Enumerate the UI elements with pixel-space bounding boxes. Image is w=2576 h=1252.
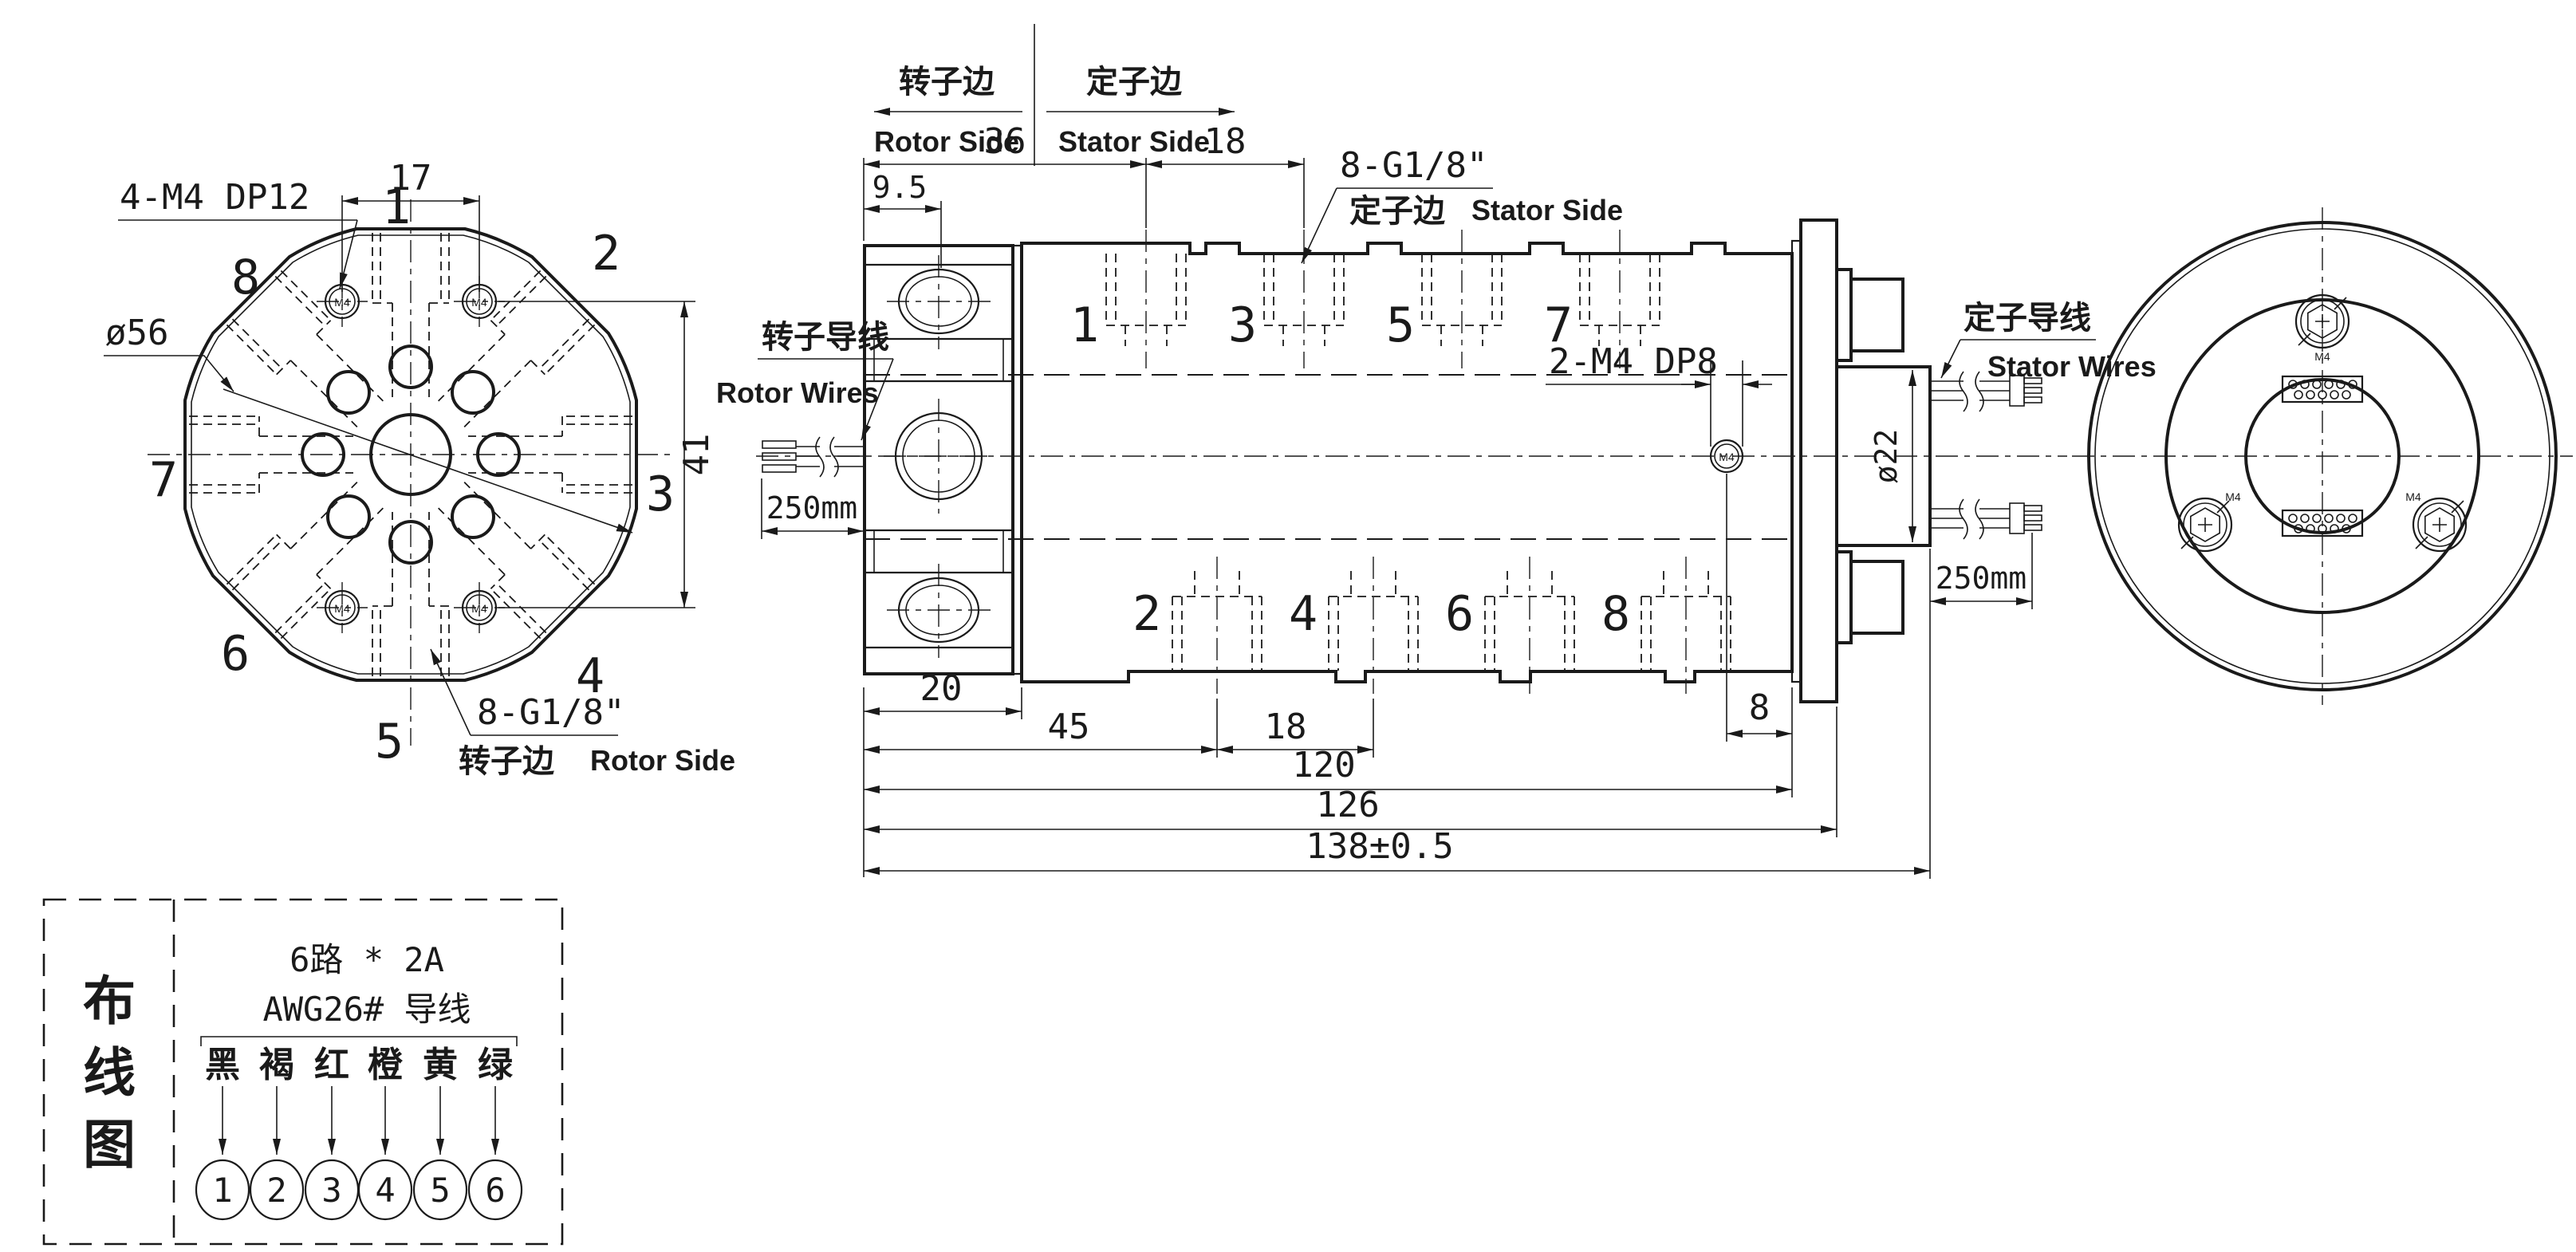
side-port-5: 5 [1386,297,1415,353]
port-label-7: 7 [149,452,178,508]
port-label-6: 6 [221,626,250,682]
dim-20: 20 [920,668,963,709]
port-label-2: 2 [592,226,620,282]
header-stator-side-en: Stator Side [1058,125,1210,158]
dim-138: 138±0.5 [1306,826,1453,867]
side-port-6: 6 [1445,586,1474,642]
stator-side-en: Stator Side [1471,194,1623,226]
dim-17: 17 [390,158,432,199]
dim-36: 36 [984,121,1026,162]
stator-wires-cn: 定子导线 [1964,301,2091,336]
m4-hole-text: M4 [471,296,487,309]
ring-number-1: 1 [212,1171,232,1210]
side-port-2: 2 [1132,586,1161,642]
wire-color-brown: 褐 [259,1045,294,1085]
side-port-4: 4 [1289,586,1318,642]
m4-screw-text: M4 [2225,490,2241,503]
dim-120: 120 [1292,745,1355,785]
side-port-3: 3 [1228,297,1257,353]
port-label-8: 8 [231,250,260,305]
header-rotor-side-cn: 转子边 [899,65,995,100]
ring-number-4: 4 [375,1171,395,1210]
wire-color-green: 绿 [478,1045,514,1085]
dim-9-5: 9.5 [872,170,928,205]
wiring-title-char-1: 布 [83,970,136,1032]
ring-number-2: 2 [266,1171,286,1210]
dim-rotor-lead: 250mm [766,490,857,526]
wiring-title-char-2: 线 [83,1041,136,1104]
dim-18-top: 18 [1204,121,1247,162]
port-label-3: 3 [646,467,675,522]
wire-color-red: 红 [314,1045,349,1085]
m4-screw-text: M4 [2314,350,2330,363]
rotor-side-en: Rotor Side [590,744,735,777]
rotor-side-cn: 转子边 [459,744,555,779]
wire-color-black: 黑 [205,1045,240,1085]
side-port-1: 1 [1070,297,1099,353]
dim-126: 126 [1316,785,1379,825]
dim-41: 41 [676,434,717,476]
ring-number-3: 3 [321,1171,341,1210]
technical-drawing: 转子边 定子边 Rotor Side Stator Side [0,0,2576,1252]
port-label-5: 5 [375,714,404,770]
wire-color-yellow: 黄 [423,1045,458,1085]
note-4-m4-dp12: 4-M4 DP12 [120,177,309,218]
wiring-spec-wire-gauge: AWG26# 导线 [262,990,471,1029]
side-port-8: 8 [1601,586,1630,642]
note-8-g18-stator: 8-G1/8" [1340,145,1487,186]
wiring-spec-circuits: 6路 * 2A [290,940,444,979]
m4-hole-text: M4 [471,602,487,615]
header-stator-side-cn: 定子边 [1086,65,1183,100]
note-2-m4-dp8: 2-M4 DP8 [1549,341,1718,382]
dim-dia56: ø56 [105,313,168,353]
m4-hole-text: M4 [334,602,350,615]
ring-number-5: 5 [430,1171,450,1210]
rotor-wires-cn: 转子导线 [762,320,889,355]
stator-side-cn: 定子边 [1349,194,1446,229]
stator-wires-en: Stator Wires [1987,350,2157,383]
m4-hole-text: M4 [334,296,350,309]
dim-dia22: ø22 [1869,429,1904,484]
dim-stator-lead: 250mm [1936,561,2027,596]
dim-18-bottom: 18 [1265,707,1307,747]
wire-color-orange: 橙 [368,1045,404,1085]
note-8-g18-rotor: 8-G1/8" [477,692,624,733]
wiring-title-char-3: 图 [83,1113,136,1175]
drawing-canvas: 转子边 定子边 Rotor Side Stator Side [0,0,2576,1252]
rotor-wires-en: Rotor Wires [716,376,879,409]
m4-screw-text: M4 [2405,490,2421,503]
dim-8: 8 [1749,687,1771,728]
dim-45: 45 [1048,707,1090,747]
ring-number-6: 6 [485,1171,505,1210]
m4-hole-text: M4 [1719,451,1735,463]
